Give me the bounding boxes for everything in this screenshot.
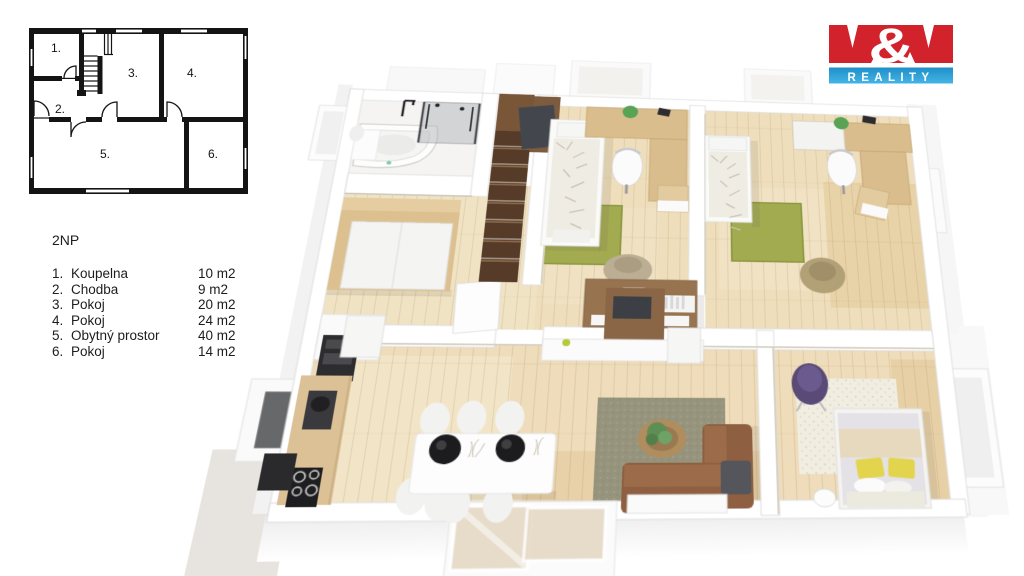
svg-text:5.: 5. <box>100 147 110 161</box>
svg-text:2.: 2. <box>55 102 65 116</box>
svg-text:1.: 1. <box>51 41 61 55</box>
svg-text:&: & <box>869 20 915 74</box>
svg-text:3.: 3. <box>128 66 138 80</box>
svg-text:4.: 4. <box>187 66 197 80</box>
svg-text:6.: 6. <box>208 147 218 161</box>
svg-text:REALITY: REALITY <box>848 72 935 84</box>
